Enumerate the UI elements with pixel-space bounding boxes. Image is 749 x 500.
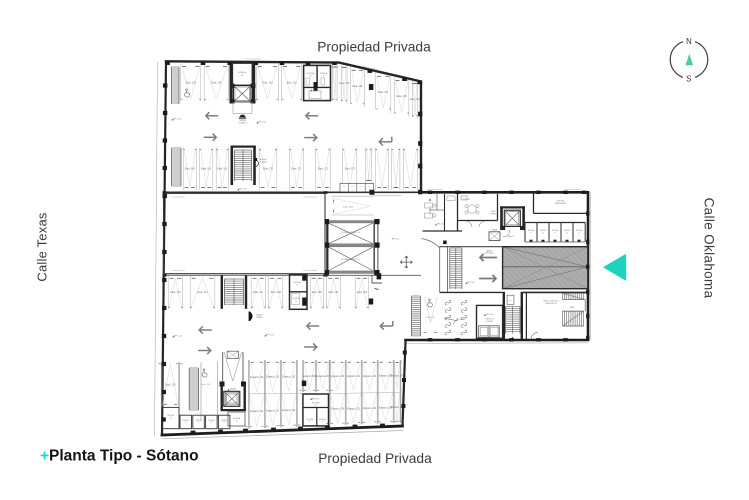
svg-text:13: 13 (223, 422, 225, 424)
svg-text:BOD: BOD (343, 186, 346, 188)
svg-text:Esta. 172: Esta. 172 (318, 168, 329, 171)
svg-text:NPT -3.10: NPT -3.10 (486, 314, 493, 316)
svg-text:2.40: 2.40 (268, 362, 271, 364)
svg-text:S: S (686, 75, 691, 84)
svg-text:TORRE: TORRE (490, 213, 495, 215)
svg-text:Espacio 131: Espacio 131 (347, 407, 361, 410)
svg-text:LOBBY: LOBBY (490, 211, 495, 213)
svg-text:07: 07 (323, 75, 325, 77)
svg-text:2.40: 2.40 (388, 362, 391, 364)
svg-text:Esta. 164: Esta. 164 (343, 205, 353, 208)
svg-text:Espacio 130: Espacio 130 (250, 410, 264, 413)
svg-text:NPT -3.10: NPT -3.10 (312, 399, 319, 401)
svg-text:2.40: 2.40 (340, 362, 343, 364)
svg-text:Espacio 130: Espacio 130 (331, 375, 345, 378)
svg-text:10: 10 (185, 422, 187, 424)
svg-text:Esta. 129: Esta. 129 (410, 98, 421, 101)
svg-text:2.40: 2.40 (291, 362, 294, 364)
svg-text:linea de propiedad: linea de propiedad (566, 189, 581, 191)
svg-text:Espacio 131: Espacio 131 (347, 375, 361, 378)
svg-text:2.40: 2.40 (400, 362, 403, 364)
svg-text:NPT -3.10: NPT -3.10 (266, 335, 274, 337)
svg-text:2.40: 2.40 (333, 362, 336, 364)
svg-text:2.40: 2.40 (312, 362, 315, 364)
svg-text:Calle Texas: Calle Texas (35, 212, 50, 281)
svg-text:Espacio 132: Espacio 132 (363, 375, 377, 378)
svg-text:Espacio 131: Espacio 131 (266, 376, 280, 379)
svg-text:RECEPCION: RECEPCION (430, 206, 432, 215)
svg-text:BODEGA: BODEGA (238, 71, 246, 74)
svg-text:N: N (686, 37, 692, 46)
svg-text:BOD: BOD (360, 186, 363, 188)
svg-text:Espacio 130: Espacio 130 (250, 376, 264, 379)
svg-text:2.40: 2.40 (252, 362, 255, 364)
svg-text:• NPT -3.10: • NPT -3.10 (391, 239, 399, 241)
svg-text:Espacio 132: Espacio 132 (282, 409, 296, 412)
svg-text:Esta. 150: Esta. 150 (312, 291, 323, 294)
svg-text:NPT -3.10: NPT -3.10 (437, 224, 444, 226)
svg-text:08: 08 (170, 417, 172, 419)
svg-text:2.40: 2.40 (392, 362, 395, 364)
svg-text:16: 16 (578, 232, 580, 234)
svg-text:Propiedad Privada: Propiedad Privada (318, 451, 432, 466)
svg-text:TORRE 2: TORRE 2 (260, 161, 267, 163)
svg-text:2.40: 2.40 (173, 404, 176, 406)
svg-text:Esta. 143: Esta. 143 (170, 291, 181, 294)
svg-text:16: 16 (296, 284, 298, 286)
svg-text:12: 12 (211, 422, 213, 424)
svg-text:linea de propiedad: linea de propiedad (171, 197, 184, 199)
svg-text:03: 03 (315, 405, 317, 407)
svg-text:Esta. 140: Esta. 140 (185, 168, 196, 171)
svg-text:COCHES 1: COCHES 1 (238, 122, 247, 124)
svg-text:2.40: 2.40 (165, 404, 168, 406)
svg-text:NPT -3.10: NPT -3.10 (258, 122, 266, 124)
svg-text:2.40: 2.40 (381, 362, 384, 364)
svg-text:wc: wc (510, 300, 512, 302)
svg-text:ELEVADOR DE AUTOS: ELEVADOR DE AUTOS (342, 258, 361, 261)
svg-text:Espacio 132: Espacio 132 (282, 376, 296, 379)
svg-text:Esta. 166: Esta. 166 (427, 316, 435, 319)
svg-text:NPT -3.10: NPT -3.10 (468, 282, 475, 284)
svg-text:06: 06 (309, 75, 311, 77)
svg-text:Esta. 136: Esta. 136 (211, 81, 222, 84)
svg-text:2.40: 2.40 (259, 362, 262, 364)
svg-text:02: 02 (309, 421, 311, 423)
svg-text:Planta Tipo - Sótano: Planta Tipo - Sótano (49, 448, 199, 465)
svg-text:Espacio 130: Espacio 130 (331, 408, 345, 411)
svg-text:Esta. 131: Esta. 131 (287, 81, 298, 84)
svg-text:2.40: 2.40 (318, 362, 321, 364)
svg-text:Esta. 130: Esta. 130 (165, 383, 176, 386)
svg-text:Espacio 230: Espacio 230 (303, 375, 317, 378)
svg-text:15: 15 (295, 300, 297, 302)
svg-text:Esta. 130: Esta. 130 (262, 81, 273, 84)
svg-text:13: 13 (542, 232, 544, 234)
svg-text:Esta. 125: Esta. 125 (339, 82, 350, 85)
svg-text:ELEVADOR DE AUTOS: ELEVADOR DE AUTOS (342, 231, 361, 234)
svg-text:2.40: 2.40 (325, 362, 328, 364)
svg-text:2.40: 2.40 (356, 362, 359, 364)
svg-text:linea de propiedad: linea de propiedad (303, 270, 316, 272)
svg-text:linea de propiedad: linea de propiedad (428, 189, 443, 191)
svg-text:2.40: 2.40 (365, 362, 368, 364)
svg-text:Esta. 170: Esta. 170 (263, 168, 274, 171)
svg-text:+: + (40, 448, 49, 465)
svg-text:Esta. 141: Esta. 141 (201, 168, 212, 171)
svg-text:Esta. 151: Esta. 151 (328, 291, 339, 294)
svg-text:01: 01 (322, 421, 324, 423)
svg-text:2.40: 2.40 (372, 362, 375, 364)
svg-text:Calle Oklahoma: Calle Oklahoma (702, 198, 717, 299)
svg-text:linea de propiedad: linea de propiedad (171, 270, 184, 272)
svg-text:NPT -3.10: NPT -3.10 (173, 119, 181, 121)
svg-text:09: 09 (241, 75, 243, 77)
svg-text:Propiedad Privada: Propiedad Privada (317, 39, 431, 54)
svg-text:linea de propiedad: linea de propiedad (246, 59, 261, 61)
svg-text:Esta. 142: Esta. 142 (217, 168, 228, 171)
svg-text:Esta. 103: Esta. 103 (202, 383, 211, 386)
svg-text:Esta. 135: Esta. 135 (186, 81, 197, 84)
svg-text:NPT -3.10: NPT -3.10 (174, 336, 182, 338)
svg-text:BOD: BOD (368, 186, 371, 188)
svg-text:12: 12 (530, 232, 532, 234)
svg-text:linea de propiedad: linea de propiedad (303, 197, 316, 199)
svg-text:2.40: 2.40 (275, 362, 278, 364)
svg-text:Esta. 128: Esta. 128 (397, 95, 408, 98)
svg-text:Esta. 144: Esta. 144 (197, 291, 208, 294)
svg-text:Espacio 131: Espacio 131 (266, 410, 280, 413)
svg-text:Esta. 126: Esta. 126 (352, 85, 363, 88)
svg-text:2.40: 2.40 (304, 362, 307, 364)
svg-text:Espacio 231: Espacio 231 (316, 375, 330, 378)
svg-text:Espacio 132: Espacio 132 (363, 407, 377, 410)
svg-text:04: 04 (236, 420, 238, 422)
svg-text:Esta. 173: Esta. 173 (345, 168, 356, 171)
svg-text:11: 11 (198, 422, 200, 424)
svg-text:Esta. 153: Esta. 153 (357, 291, 368, 294)
svg-text:Esta. 147: Esta. 147 (253, 291, 264, 294)
svg-text:NPT -3.10: NPT -3.10 (239, 189, 246, 191)
svg-text:Espacio 134: Espacio 134 (391, 375, 405, 378)
svg-text:AMENIDADES: AMENIDADES (555, 202, 567, 205)
svg-text:BOD: BOD (351, 186, 354, 188)
svg-text:Esta. 171: Esta. 171 (292, 168, 303, 171)
svg-text:2.40: 2.40 (349, 362, 352, 364)
svg-text:Esta. 127: Esta. 127 (378, 91, 389, 94)
svg-text:TORRE 1: TORRE 1 (256, 317, 263, 319)
svg-text:14: 14 (554, 232, 556, 234)
svg-text:Esta. 148: Esta. 148 (271, 291, 282, 294)
svg-text:2.40: 2.40 (284, 362, 287, 364)
svg-text:15: 15 (566, 232, 568, 234)
